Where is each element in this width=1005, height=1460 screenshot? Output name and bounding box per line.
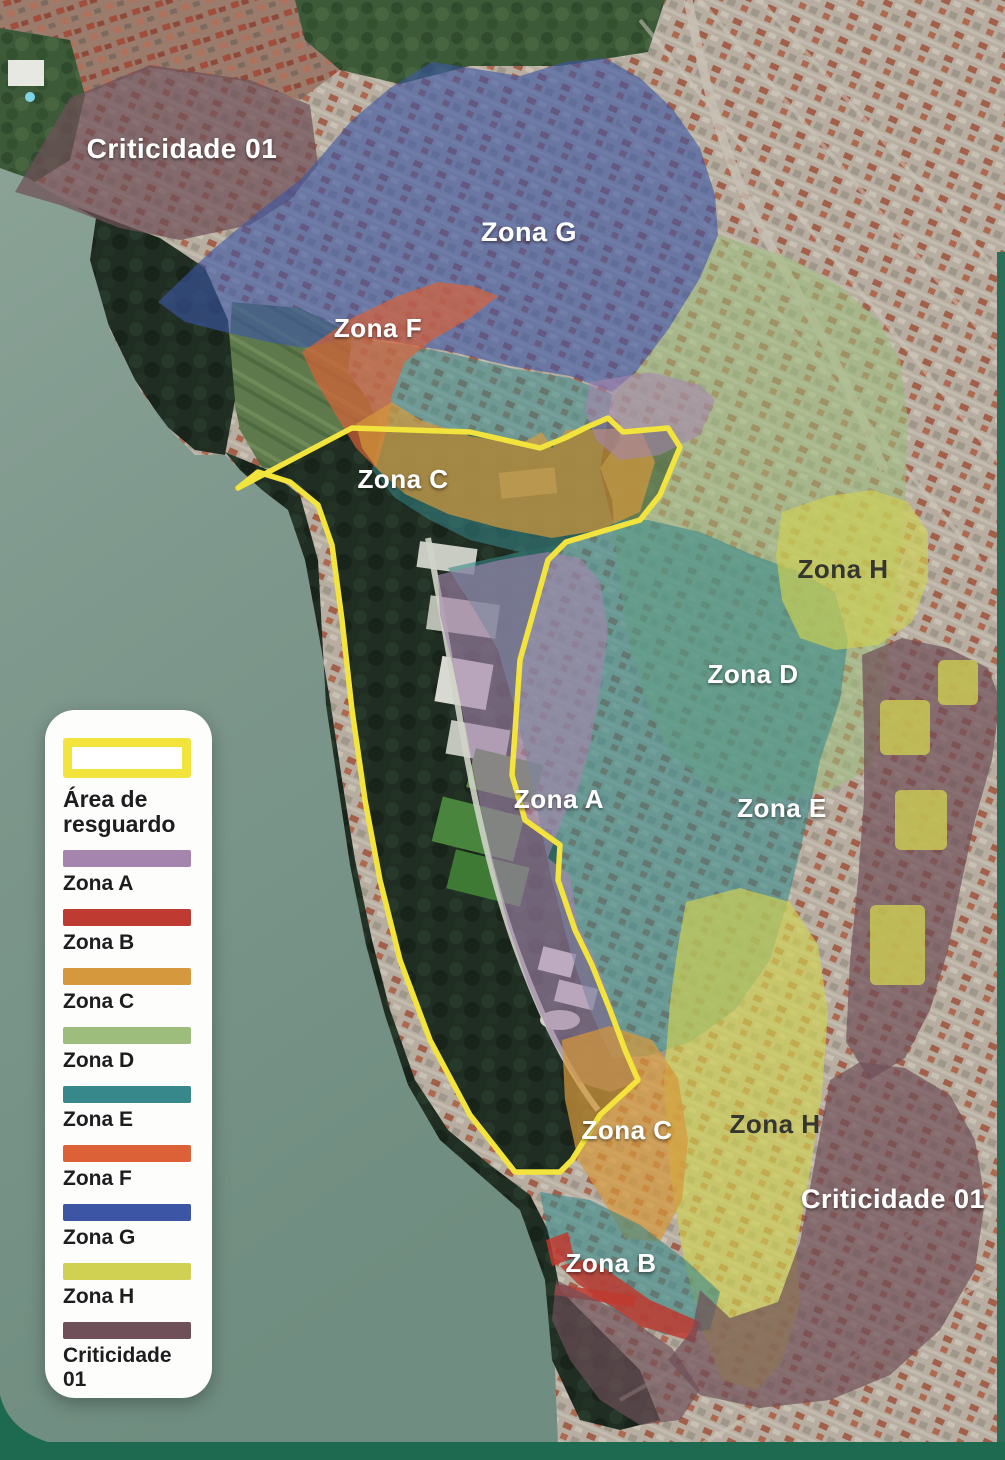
legend-swatch-zona-e (63, 1086, 191, 1103)
map-label-zona-a: Zona A (514, 784, 604, 814)
map-label-zona-h-bottom: Zona H (729, 1109, 820, 1139)
legend-item-zona-g: Zona G (63, 1204, 194, 1250)
map-label-zona-e: Zona E (737, 793, 827, 823)
map-label-zona-d: Zona D (707, 659, 798, 689)
legend-swatch-zona-g (63, 1204, 191, 1221)
legend-label-area-de-resguardo: Área de resguardo (63, 787, 194, 837)
map-label-zona-c-bottom: Zona C (581, 1115, 672, 1145)
map-label-zona-g: Zona G (481, 217, 577, 247)
legend-swatch-zona-c (63, 968, 191, 985)
map-label-criticidade-bottom: Criticidade 01 (801, 1184, 985, 1214)
legend-label-zona-b: Zona B (63, 931, 194, 955)
legend-card: Área de resguardo Zona A Zona B Zona C Z… (45, 710, 212, 1398)
legend-label-criticidade-01: Criticidade 01 (63, 1344, 194, 1392)
legend-item-zona-e: Zona E (63, 1086, 194, 1132)
legend-item-zona-f: Zona F (63, 1145, 194, 1191)
legend-swatch-zona-h (63, 1263, 191, 1280)
legend-label-zona-c: Zona C (63, 990, 194, 1014)
legend-item-criticidade-01: Criticidade 01 (63, 1322, 194, 1392)
legend-swatch-zona-a (63, 850, 191, 867)
legend-label-zona-e: Zona E (63, 1108, 194, 1132)
legend-item-zona-a: Zona A (63, 850, 194, 896)
legend-swatch-area-de-resguardo (63, 738, 191, 778)
pool-topleft (25, 92, 35, 102)
map-label-criticidade-top: Criticidade 01 (87, 133, 278, 164)
legend-label-zona-h: Zona H (63, 1285, 194, 1309)
legend-label-zona-g: Zona G (63, 1226, 194, 1250)
legend-swatch-zona-d (63, 1027, 191, 1044)
legend-swatch-zona-b (63, 909, 191, 926)
legend-item-zona-d: Zona D (63, 1027, 194, 1073)
legend-item-zona-h: Zona H (63, 1263, 194, 1309)
map-label-zona-c-top: Zona C (357, 464, 448, 494)
legend-label-zona-d: Zona D (63, 1049, 194, 1073)
map-label-zona-h-top: Zona H (797, 554, 888, 584)
map-label-zona-b: Zona B (565, 1248, 656, 1278)
bottom-border-bar (0, 1442, 1005, 1460)
right-border-strip (997, 252, 1005, 1460)
legend-swatch-criticidade-01 (63, 1322, 191, 1339)
legend-swatch-zona-f (63, 1145, 191, 1162)
legend-item-zona-c: Zona C (63, 968, 194, 1014)
legend-item-zona-b: Zona B (63, 909, 194, 955)
map-canvas: Criticidade 01 Zona G Zona F Zona C Zona… (0, 0, 1005, 1460)
legend-label-zona-a: Zona A (63, 872, 194, 896)
building-topleft (8, 60, 44, 86)
legend-label-zona-f: Zona F (63, 1167, 194, 1191)
map-label-zona-f: Zona F (334, 313, 422, 343)
